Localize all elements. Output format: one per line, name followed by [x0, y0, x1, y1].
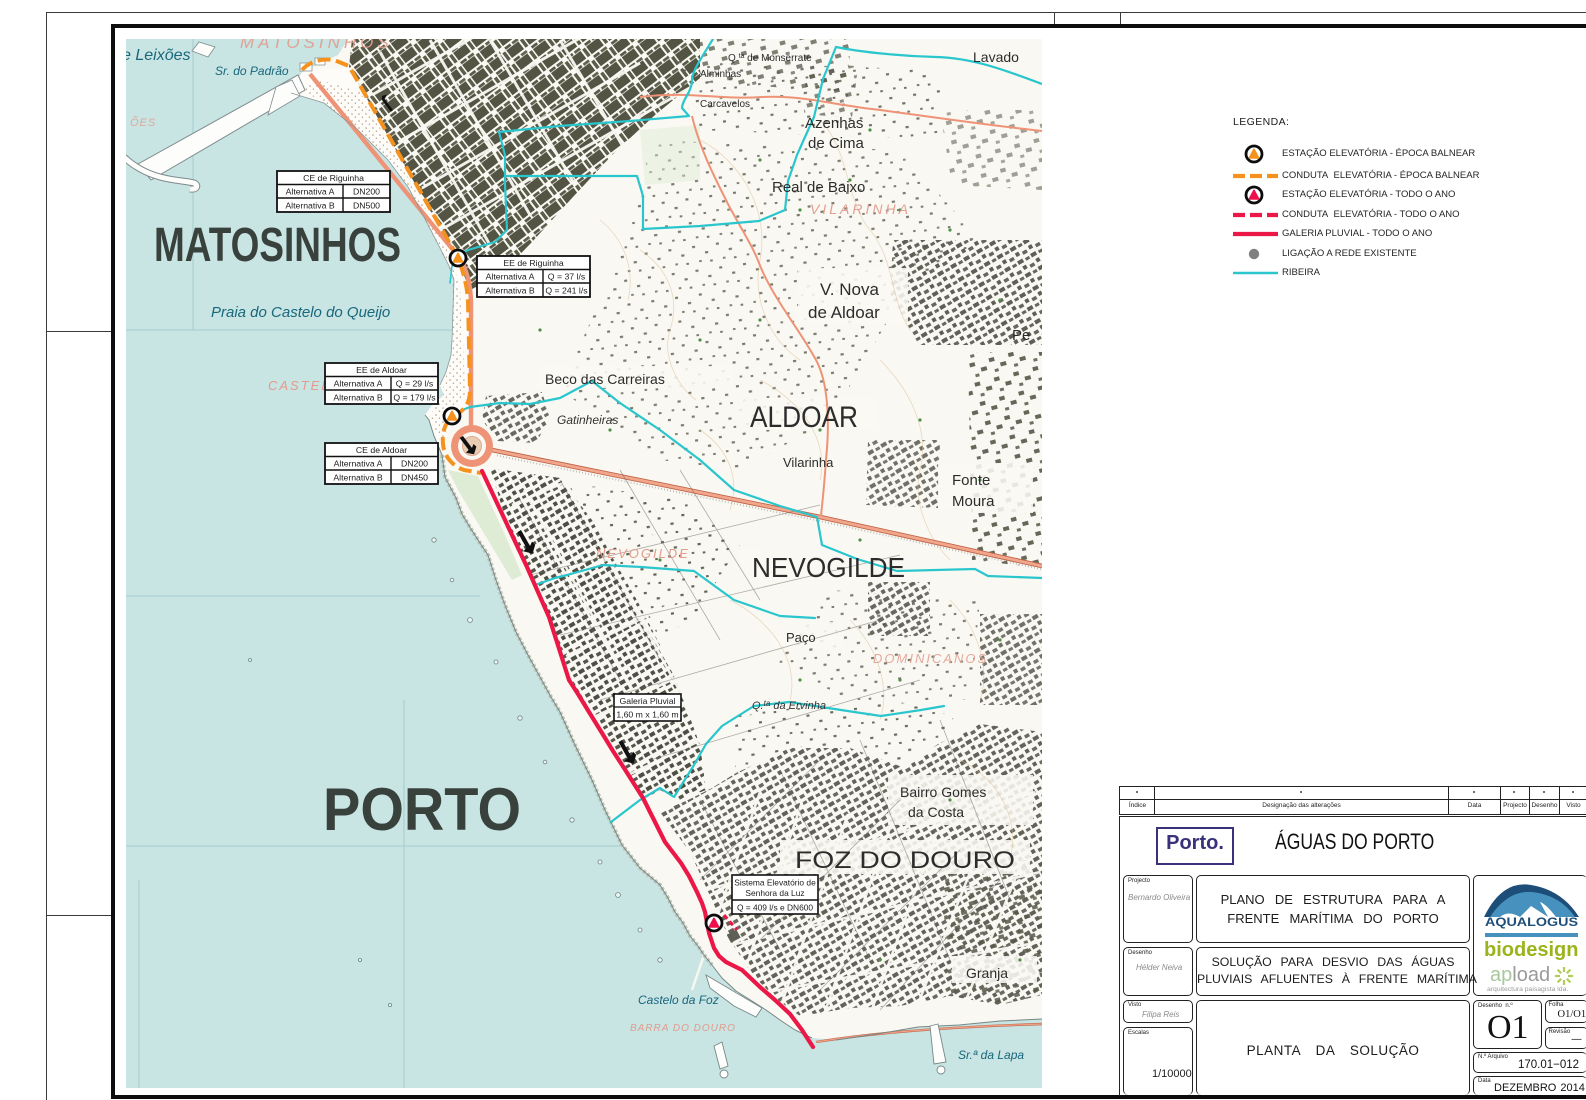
svg-text:DN450: DN450: [401, 472, 428, 482]
svg-text:Alternativa A: Alternativa A: [334, 459, 383, 469]
svg-text:DN500: DN500: [353, 200, 380, 210]
svg-text:Paço: Paço: [786, 630, 816, 645]
svg-text:Granja: Granja: [966, 965, 1008, 981]
svg-text:EE de Aldoar: EE de Aldoar: [356, 365, 407, 375]
svg-text:Alternativa B: Alternativa B: [485, 285, 534, 295]
svg-text:da Costa: da Costa: [908, 804, 964, 820]
svg-text:Q = 179 l/s: Q = 179 l/s: [393, 392, 436, 402]
svg-text:Carcavelos: Carcavelos: [700, 99, 750, 110]
svg-text:Q = 29 l/s: Q = 29 l/s: [396, 379, 434, 389]
svg-text:Q.ta da Ervinha: Q.ta da Ervinha: [752, 699, 826, 712]
svg-text:Senhora da Luz: Senhora da Luz: [745, 888, 804, 898]
svg-text:V. Nova: V. Nova: [820, 280, 879, 299]
svg-text:NEVOGILDE: NEVOGILDE: [596, 546, 690, 561]
svg-text:Alminhas: Alminhas: [700, 69, 741, 80]
svg-text:Fonte: Fonte: [952, 472, 990, 489]
svg-text:Pe: Pe: [1012, 327, 1030, 344]
svg-text:Sr. do Padrão: Sr. do Padrão: [215, 64, 289, 78]
svg-text:MATOSINHOS: MATOSINHOS: [240, 33, 393, 52]
svg-text:CE de Aldoar: CE de Aldoar: [356, 445, 407, 455]
svg-text:Q = 241 l/s: Q = 241 l/s: [545, 285, 588, 295]
svg-text:NEVOGILDE: NEVOGILDE: [752, 552, 905, 583]
svg-text:EE de Riguinha: EE de Riguinha: [503, 258, 564, 268]
svg-text:Vilarinha: Vilarinha: [783, 455, 834, 470]
svg-text:Praia do Castelo do Queijo: Praia do Castelo do Queijo: [211, 304, 390, 321]
svg-text:Moura: Moura: [952, 493, 995, 510]
svg-text:DN200: DN200: [353, 187, 380, 197]
svg-text:de Aldoar: de Aldoar: [808, 303, 880, 322]
svg-text:Real de Baixo: Real de Baixo: [772, 179, 865, 196]
svg-text:CE de Riguinha: CE de Riguinha: [303, 173, 364, 183]
svg-text:BARRA DO DOURO: BARRA DO DOURO: [630, 1023, 736, 1034]
svg-text:DOMINICANOS: DOMINICANOS: [873, 651, 988, 666]
svg-text:Castelo da Foz: Castelo da Foz: [638, 993, 719, 1007]
svg-text:FOZ DO DOURO: FOZ DO DOURO: [795, 847, 1015, 874]
svg-text:MATOSINHOS: MATOSINHOS: [154, 219, 401, 272]
svg-text:Q = 37 l/s: Q = 37 l/s: [548, 272, 586, 282]
svg-text:ÕES: ÕES: [130, 116, 156, 129]
svg-text:Alternativa A: Alternativa A: [286, 187, 335, 197]
svg-text:Lavado: Lavado: [973, 49, 1019, 65]
svg-text:VILARINHA: VILARINHA: [810, 201, 911, 217]
svg-text:Alternativa B: Alternativa B: [333, 472, 382, 482]
svg-text:e Leixões: e Leixões: [122, 47, 191, 64]
svg-text:Alternativa B: Alternativa B: [285, 200, 334, 210]
svg-text:AQUALOGUS: AQUALOGUS: [1485, 915, 1578, 929]
svg-text:PORTO: PORTO: [323, 776, 521, 843]
svg-text:Sr.ª da Lapa: Sr.ª da Lapa: [958, 1048, 1024, 1062]
svg-text:Alternativa B: Alternativa B: [333, 392, 382, 402]
svg-text:Galeria Pluvial: Galeria Pluvial: [619, 696, 675, 706]
svg-text:1,60 m x 1,60 m: 1,60 m x 1,60 m: [616, 710, 678, 720]
svg-text:Alternativa A: Alternativa A: [486, 272, 535, 282]
svg-text:Bairro Gomes: Bairro Gomes: [900, 784, 986, 800]
svg-text:de Cima: de Cima: [808, 135, 865, 152]
svg-text:DN200: DN200: [401, 459, 428, 469]
svg-text:Azenhas: Azenhas: [805, 115, 863, 132]
svg-text:Q = 409 l/s e DN600: Q = 409 l/s e DN600: [737, 903, 813, 913]
svg-text:ALDOAR: ALDOAR: [750, 401, 858, 434]
svg-text:Gatinheiras: Gatinheiras: [557, 413, 618, 427]
svg-text:Sistema Elevatório de: Sistema Elevatório de: [734, 878, 816, 888]
svg-text:Alternativa A: Alternativa A: [334, 379, 383, 389]
svg-text:Beco das Carreiras: Beco das Carreiras: [545, 371, 665, 387]
